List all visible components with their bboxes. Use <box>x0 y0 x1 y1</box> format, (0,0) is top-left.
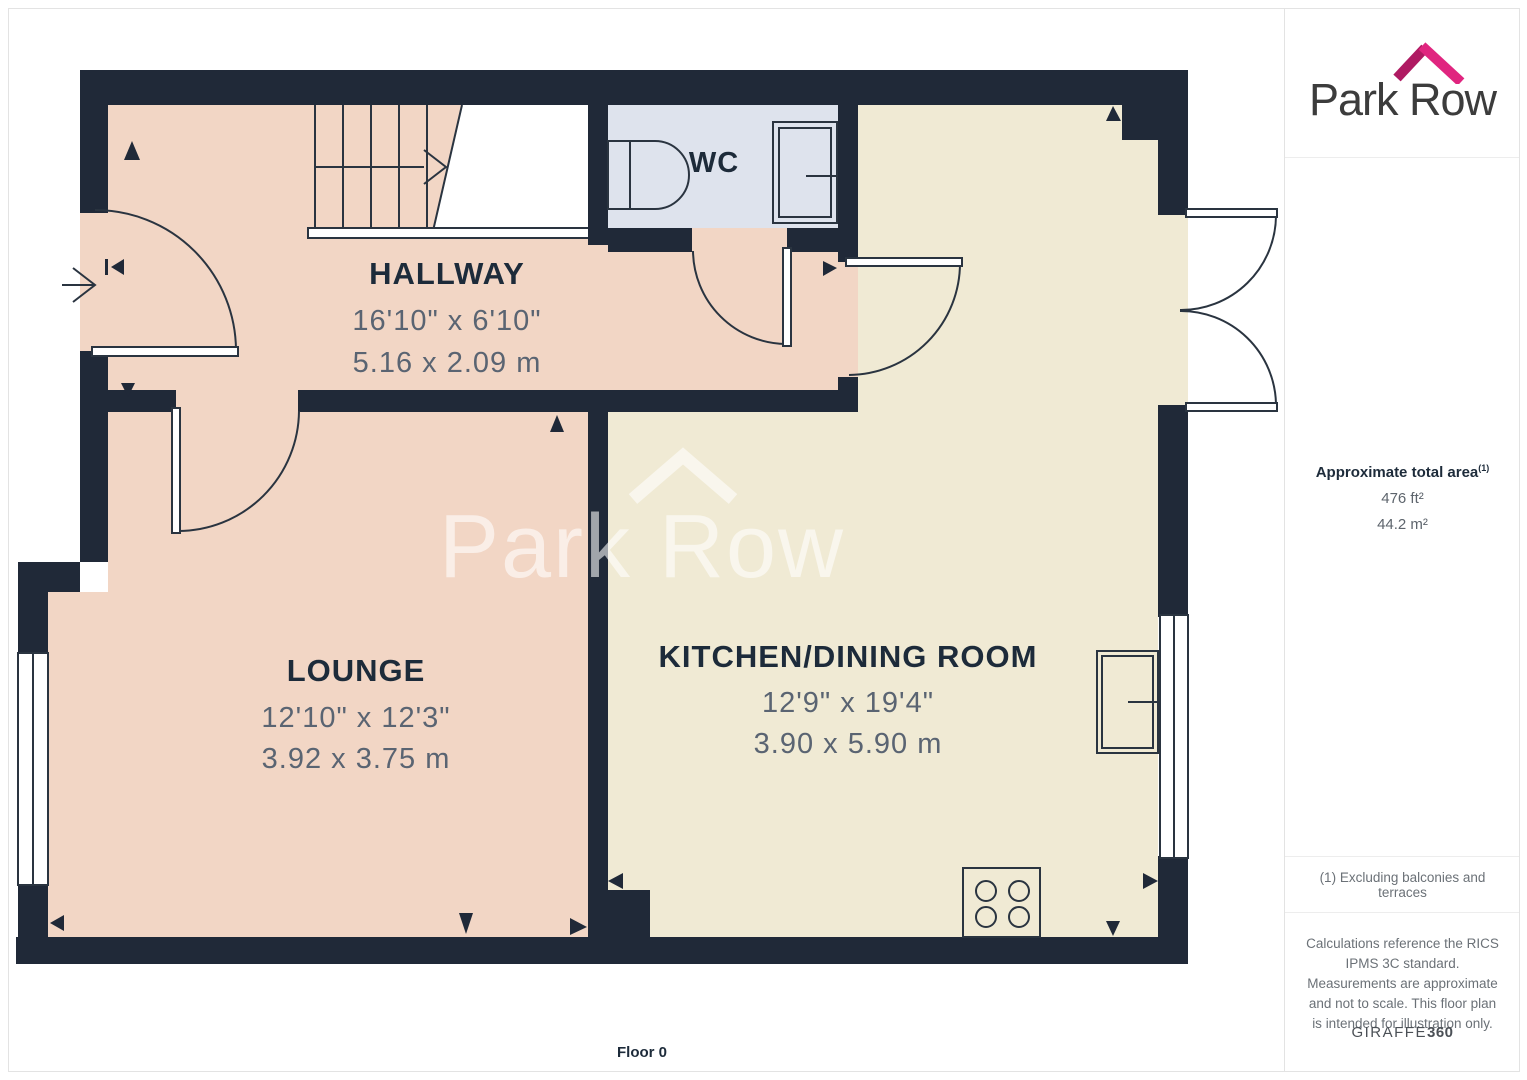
kitchen-door-gap <box>838 262 858 379</box>
credit-suffix: 360 <box>1427 1024 1454 1041</box>
total-area-imperial: 476 ft² <box>1285 490 1520 507</box>
total-area-block: Approximate total area(1) 476 ft² 44.2 m… <box>1285 463 1520 533</box>
room-dim-imperial: 12'10" x 12'3" <box>261 702 450 734</box>
room-name: LOUNGE <box>287 653 426 688</box>
room-dim-imperial: 12'9" x 19'4" <box>762 687 934 719</box>
room-dim-imperial: 16'10" x 6'10" <box>352 305 541 337</box>
total-area-metric: 44.2 m² <box>1285 516 1520 533</box>
room-dim-metric: 5.16 x 2.09 m <box>353 347 542 379</box>
total-area-title: Approximate total area(1) <box>1285 463 1520 481</box>
floor-plan: Park Row HALLWAY 16'10" x 6'10" 5.16 x 2… <box>0 0 1284 1080</box>
floor-label: Floor 0 <box>0 1044 1284 1061</box>
credit: GIRAFFE360 <box>1285 1024 1520 1041</box>
brand-header: Park Row <box>1285 8 1520 158</box>
lounge-door-gap <box>176 390 298 414</box>
front-door-gap <box>80 212 110 352</box>
credit-name: GIRAFFE <box>1351 1024 1427 1041</box>
watermark-text: Park Row <box>439 497 845 597</box>
room-dim-metric: 3.90 x 5.90 m <box>754 728 943 760</box>
brand-logo-text: Park Row <box>1285 74 1520 126</box>
wc-door-gap <box>692 228 787 254</box>
lounge-floor-west <box>48 592 108 937</box>
room-name: WC <box>689 147 739 179</box>
wc-label: WC <box>689 147 739 179</box>
room-name: HALLWAY <box>369 256 525 291</box>
lounge-window <box>18 653 48 885</box>
room-name: KITCHEN/DINING ROOM <box>659 639 1038 674</box>
lounge-label: LOUNGE 12'10" x 12'3" 3.92 x 3.75 m <box>261 653 450 775</box>
footnote-ref: (1) <box>1478 463 1489 473</box>
hallway-label: HALLWAY 16'10" x 6'10" 5.16 x 2.09 m <box>352 256 541 379</box>
french-doors <box>1180 209 1277 411</box>
room-dim-metric: 3.92 x 3.75 m <box>262 743 451 775</box>
stair-edge <box>308 228 592 238</box>
disclaimer: Calculations reference the RICS IPMS 3C … <box>1285 934 1520 1034</box>
footnote: (1) Excluding balconies and terraces <box>1285 856 1520 913</box>
kitchen-window <box>1160 615 1188 858</box>
sidebar: Park Row Approximate total area(1) 476 f… <box>1284 8 1520 1071</box>
